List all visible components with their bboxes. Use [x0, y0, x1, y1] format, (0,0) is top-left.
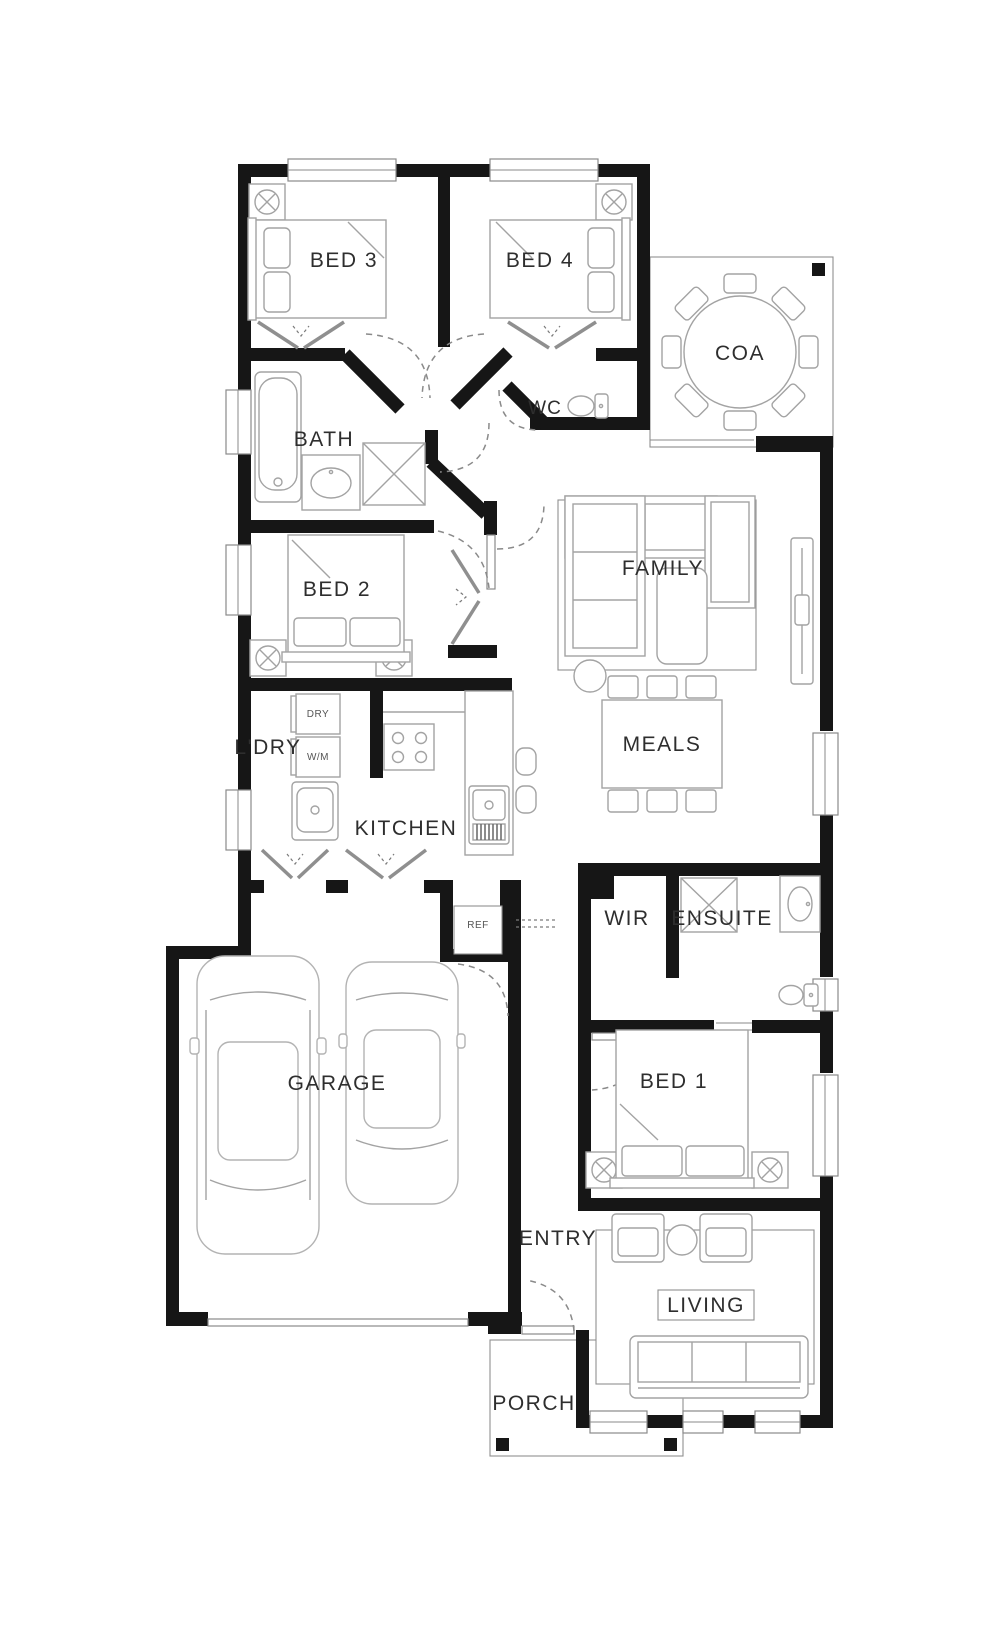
porch-post [664, 1438, 677, 1451]
ensuite-label: ENSUITE [671, 907, 773, 930]
bath-label: BATH [294, 428, 354, 451]
bath-shower [363, 443, 425, 505]
stool [516, 786, 536, 813]
living-label: LIVING [667, 1294, 745, 1317]
wc-label: WC [528, 398, 562, 419]
window [755, 1411, 800, 1433]
wc-toilet [568, 394, 608, 418]
window [226, 790, 251, 850]
bed2-robe [452, 550, 479, 644]
window [813, 733, 838, 815]
bed3-label: BED 3 [310, 249, 378, 272]
bed1-label: BED 1 [640, 1070, 708, 1093]
dining-chair [608, 676, 638, 698]
garage-entry-door-arc [458, 964, 508, 1016]
entry-label: ENTRY [519, 1227, 597, 1250]
side-table [574, 660, 606, 692]
wir-label: WIR [604, 907, 649, 930]
hall-robe-1 [262, 850, 328, 878]
family-furniture [558, 496, 813, 692]
dining-chair [647, 676, 677, 698]
floor-plan: BED 3 BED 4 COA WC BATH FAMILY BED 2 MEA… [0, 0, 1000, 1646]
living-label-group: LIVING [658, 1290, 754, 1320]
bed4-robe [508, 322, 596, 348]
fan-icon [250, 640, 286, 676]
bed2-label: BED 2 [303, 578, 371, 601]
window [590, 1411, 647, 1433]
dining-chair [608, 790, 638, 812]
meals-label: MEALS [623, 733, 702, 756]
porch-label: PORCH [492, 1392, 575, 1415]
bed1-bed [610, 1030, 754, 1188]
ldry-label: L'DRY [234, 736, 301, 759]
kitchen-island [465, 691, 513, 855]
living-sofa [630, 1336, 808, 1398]
family-label: FAMILY [622, 557, 704, 580]
dining-chair [686, 676, 716, 698]
coa-label: COA [715, 342, 765, 365]
bed4-label: BED 4 [506, 249, 574, 272]
window [288, 159, 396, 181]
round-side-table [667, 1225, 697, 1255]
window [813, 1075, 838, 1176]
hall-robe-2 [346, 850, 426, 878]
entry-door-arc [526, 1280, 574, 1331]
floor-plan-svg: BED 3 BED 4 COA WC BATH FAMILY BED 2 MEA… [0, 0, 1000, 1646]
bed2-door-leaf [487, 535, 495, 589]
garage-label: GARAGE [288, 1072, 387, 1095]
car [190, 956, 326, 1254]
fan-icon [249, 184, 285, 220]
washer-label: W/M [307, 752, 329, 763]
dining-chair [686, 790, 716, 812]
fridge-label: REF [467, 920, 489, 931]
ensuite-toilet [779, 984, 818, 1006]
garage-door [208, 1319, 468, 1326]
porch-post [496, 1438, 509, 1451]
bed2-door-arc [438, 531, 489, 588]
coffee-table [657, 568, 707, 664]
fan-icon [752, 1152, 788, 1188]
bath-vanity [302, 455, 360, 510]
kitchen-label: KITCHEN [355, 817, 458, 840]
ensuite-vanity [780, 876, 820, 932]
family-opening-arc [497, 503, 544, 549]
stool [516, 748, 536, 775]
tv-unit [791, 538, 813, 684]
cooktop [384, 724, 434, 770]
window [490, 159, 598, 181]
armchair [700, 1214, 752, 1262]
window [226, 545, 251, 615]
bath-door-arc [440, 423, 489, 472]
coa-post [812, 263, 825, 276]
dryer-label: DRY [307, 709, 329, 720]
garage-cars [190, 956, 465, 1254]
window [683, 1411, 723, 1433]
ensuite-fixtures [681, 876, 820, 1006]
entry-door-leaf [522, 1326, 574, 1334]
laundry-trough [292, 782, 338, 840]
fan-icon [596, 184, 632, 220]
armchair [612, 1214, 664, 1262]
bed3-robe [258, 322, 344, 348]
dining-chair [647, 790, 677, 812]
window [226, 390, 251, 454]
